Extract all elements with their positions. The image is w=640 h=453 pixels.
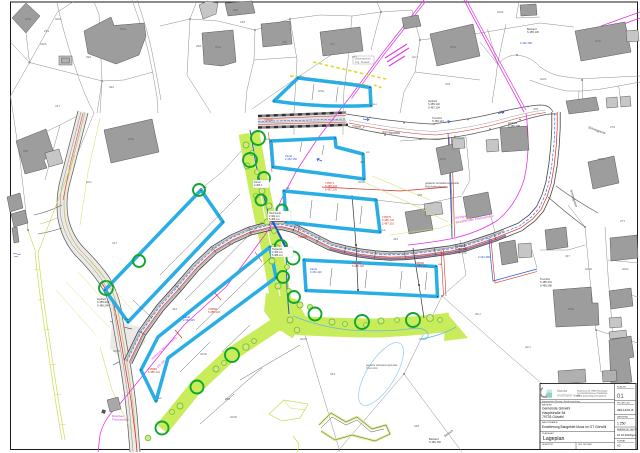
svg-text:Whs: Whs bbox=[318, 89, 325, 93]
svg-text:5.486.101: 5.486.101 bbox=[148, 370, 160, 374]
svg-text:437: 437 bbox=[565, 254, 570, 258]
svg-text:208: 208 bbox=[233, 8, 238, 12]
svg-text:5.486.110: 5.486.110 bbox=[415, 264, 427, 268]
svg-text:248: 248 bbox=[225, 397, 230, 401]
svg-text:S 485.280: S 485.280 bbox=[540, 283, 552, 287]
svg-text:e-mail: gutmann@gutmann-gmbh.d: e-mail: gutmann@gutmann-gmbh.de bbox=[577, 395, 606, 398]
svg-text:GRA: GRA bbox=[622, 267, 629, 271]
svg-text:GFW: GFW bbox=[230, 415, 237, 419]
svg-text:434: 434 bbox=[228, 242, 233, 246]
svg-text:S 487.211: S 487.211 bbox=[455, 250, 467, 254]
svg-text:GFW: GFW bbox=[300, 337, 307, 341]
svg-text:GFJ: GFJ bbox=[525, 345, 531, 349]
svg-text:Whs: Whs bbox=[450, 45, 457, 49]
svg-text:5.486.120: 5.486.120 bbox=[352, 264, 364, 268]
svg-text:GFW: GFW bbox=[200, 352, 207, 356]
svg-text:2.464.115: 2.464.115 bbox=[183, 318, 195, 322]
svg-text:318: 318 bbox=[23, 149, 28, 153]
svg-text:745590: 745590 bbox=[264, 118, 273, 122]
svg-text:GEZ. BUCHER: GEZ. BUCHER bbox=[578, 444, 592, 446]
svg-text:1:250: 1:250 bbox=[617, 422, 626, 426]
svg-text:377: 377 bbox=[352, 55, 357, 59]
svg-text:FORMAT: FORMAT bbox=[617, 440, 626, 443]
svg-text:377: 377 bbox=[330, 42, 335, 46]
svg-text:GFW: GFW bbox=[585, 267, 592, 271]
svg-text:Whs: Whs bbox=[440, 157, 447, 161]
svg-text:Whs: Whs bbox=[128, 137, 135, 141]
svg-text:GFs: GFs bbox=[86, 180, 92, 184]
svg-text:2.464.480: 2.464.480 bbox=[478, 255, 490, 259]
svg-text:Whs: Whs bbox=[568, 307, 575, 311]
svg-text:GRA: GRA bbox=[55, 17, 62, 21]
svg-text:S 485.168: S 485.168 bbox=[508, 124, 520, 128]
svg-text:2.462.150: 2.462.150 bbox=[285, 157, 297, 161]
svg-text:317: 317 bbox=[112, 241, 117, 245]
svg-text:GEFERTIGT: GEFERTIGT bbox=[542, 444, 554, 446]
svg-text:PLANINHALT: PLANINHALT bbox=[542, 432, 555, 435]
svg-text:S 486.240: S 486.240 bbox=[97, 303, 109, 307]
svg-text:S 486.114: S 486.114 bbox=[432, 119, 444, 123]
svg-text:234: 234 bbox=[44, 29, 49, 33]
svg-text:277: 277 bbox=[620, 219, 625, 223]
svg-text:BEARBEITET DATUM: BEARBEITET DATUM bbox=[617, 428, 637, 431]
svg-text:GRA: GRA bbox=[40, 42, 47, 46]
svg-text:GFJ: GFJ bbox=[475, 312, 481, 316]
svg-text:PLAN-NR: PLAN-NR bbox=[617, 386, 626, 389]
svg-text:Whs: Whs bbox=[595, 39, 602, 43]
svg-text:317: 317 bbox=[55, 104, 60, 108]
svg-text:328: 328 bbox=[414, 424, 419, 428]
svg-text:478: 478 bbox=[417, 193, 422, 197]
svg-text:2.463.1: 2.463.1 bbox=[254, 184, 263, 187]
svg-text:392: 392 bbox=[86, 55, 91, 59]
svg-text:Pumpstation: Pumpstation bbox=[112, 418, 129, 422]
svg-text:S 486.150: S 486.150 bbox=[429, 440, 441, 444]
svg-text:BAUVORHABEN: BAUVORHABEN bbox=[542, 421, 558, 424]
svg-text:5.486.xxx: 5.486.xxx bbox=[272, 254, 283, 257]
svg-text:S 485.130: S 485.130 bbox=[527, 30, 539, 34]
svg-text:270: 270 bbox=[610, 125, 615, 129]
svg-text:01: 01 bbox=[617, 394, 624, 400]
svg-text:10.10.2016/gm: 10.10.2016/gm bbox=[617, 433, 636, 437]
svg-text:5.487.210: 5.487.210 bbox=[382, 221, 394, 225]
svg-text:5.486.xxx: 5.486.xxx bbox=[269, 218, 280, 221]
svg-text:GRA: GRA bbox=[598, 157, 605, 161]
svg-text:GRA: GRA bbox=[497, 10, 504, 14]
svg-text:478: 478 bbox=[445, 82, 450, 86]
svg-text:434: 434 bbox=[393, 237, 398, 241]
svg-text:Lageplan: Lageplan bbox=[543, 436, 564, 442]
svg-text:334: 334 bbox=[330, 372, 335, 376]
svg-text:MASSSTAB: MASSSTAB bbox=[617, 416, 628, 419]
svg-text:79733 Görwihl: 79733 Görwihl bbox=[542, 415, 564, 419]
svg-text:099-14/01 B: 099-14/01 B bbox=[617, 408, 633, 412]
svg-text:Erweiterung Baugebiet Moos im: Erweiterung Baugebiet Moos im OT Görwihl bbox=[542, 425, 607, 429]
svg-text:745588: 745588 bbox=[298, 235, 307, 239]
svg-text:V=xxx cbm: V=xxx cbm bbox=[366, 367, 378, 370]
svg-text:5.487.230: 5.487.230 bbox=[325, 187, 337, 191]
svg-text:Whs: Whs bbox=[120, 27, 127, 31]
svg-text:478: 478 bbox=[533, 107, 538, 111]
svg-text:GRA: GRA bbox=[540, 77, 547, 81]
svg-text:Whs: Whs bbox=[215, 45, 222, 49]
svg-text:434: 434 bbox=[172, 307, 177, 311]
svg-text:2.463.110: 2.463.110 bbox=[310, 270, 322, 274]
svg-text:378: 378 bbox=[282, 40, 287, 44]
svg-text:258: 258 bbox=[196, 44, 201, 48]
svg-text:Ingenieurbüro Planung - Bauübe: Ingenieurbüro Planung - Bauüberwachung bbox=[542, 401, 580, 403]
svg-text:GFJ: GFJ bbox=[412, 55, 418, 59]
svg-text:zug. Strasse: zug. Strasse bbox=[355, 60, 370, 64]
svg-text:2.462.180: 2.462.180 bbox=[520, 41, 532, 45]
svg-text:GFW: GFW bbox=[358, 180, 365, 184]
svg-text:Whs: Whs bbox=[25, 17, 32, 21]
svg-text:tlanda: tlanda bbox=[557, 389, 568, 393]
svg-text:S 487.104: S 487.104 bbox=[428, 105, 440, 109]
svg-text:geplante Versickerungsmulde: geplante Versickerungsmulde bbox=[425, 181, 460, 185]
svg-text:GFW: GFW bbox=[113, 349, 120, 353]
svg-text:476: 476 bbox=[360, 160, 365, 164]
svg-text:Rückhaltevolumen: Rückhaltevolumen bbox=[425, 185, 447, 189]
svg-text:A2: A2 bbox=[617, 444, 621, 448]
svg-text:318: 318 bbox=[240, 20, 245, 24]
svg-text:392: 392 bbox=[109, 85, 114, 89]
